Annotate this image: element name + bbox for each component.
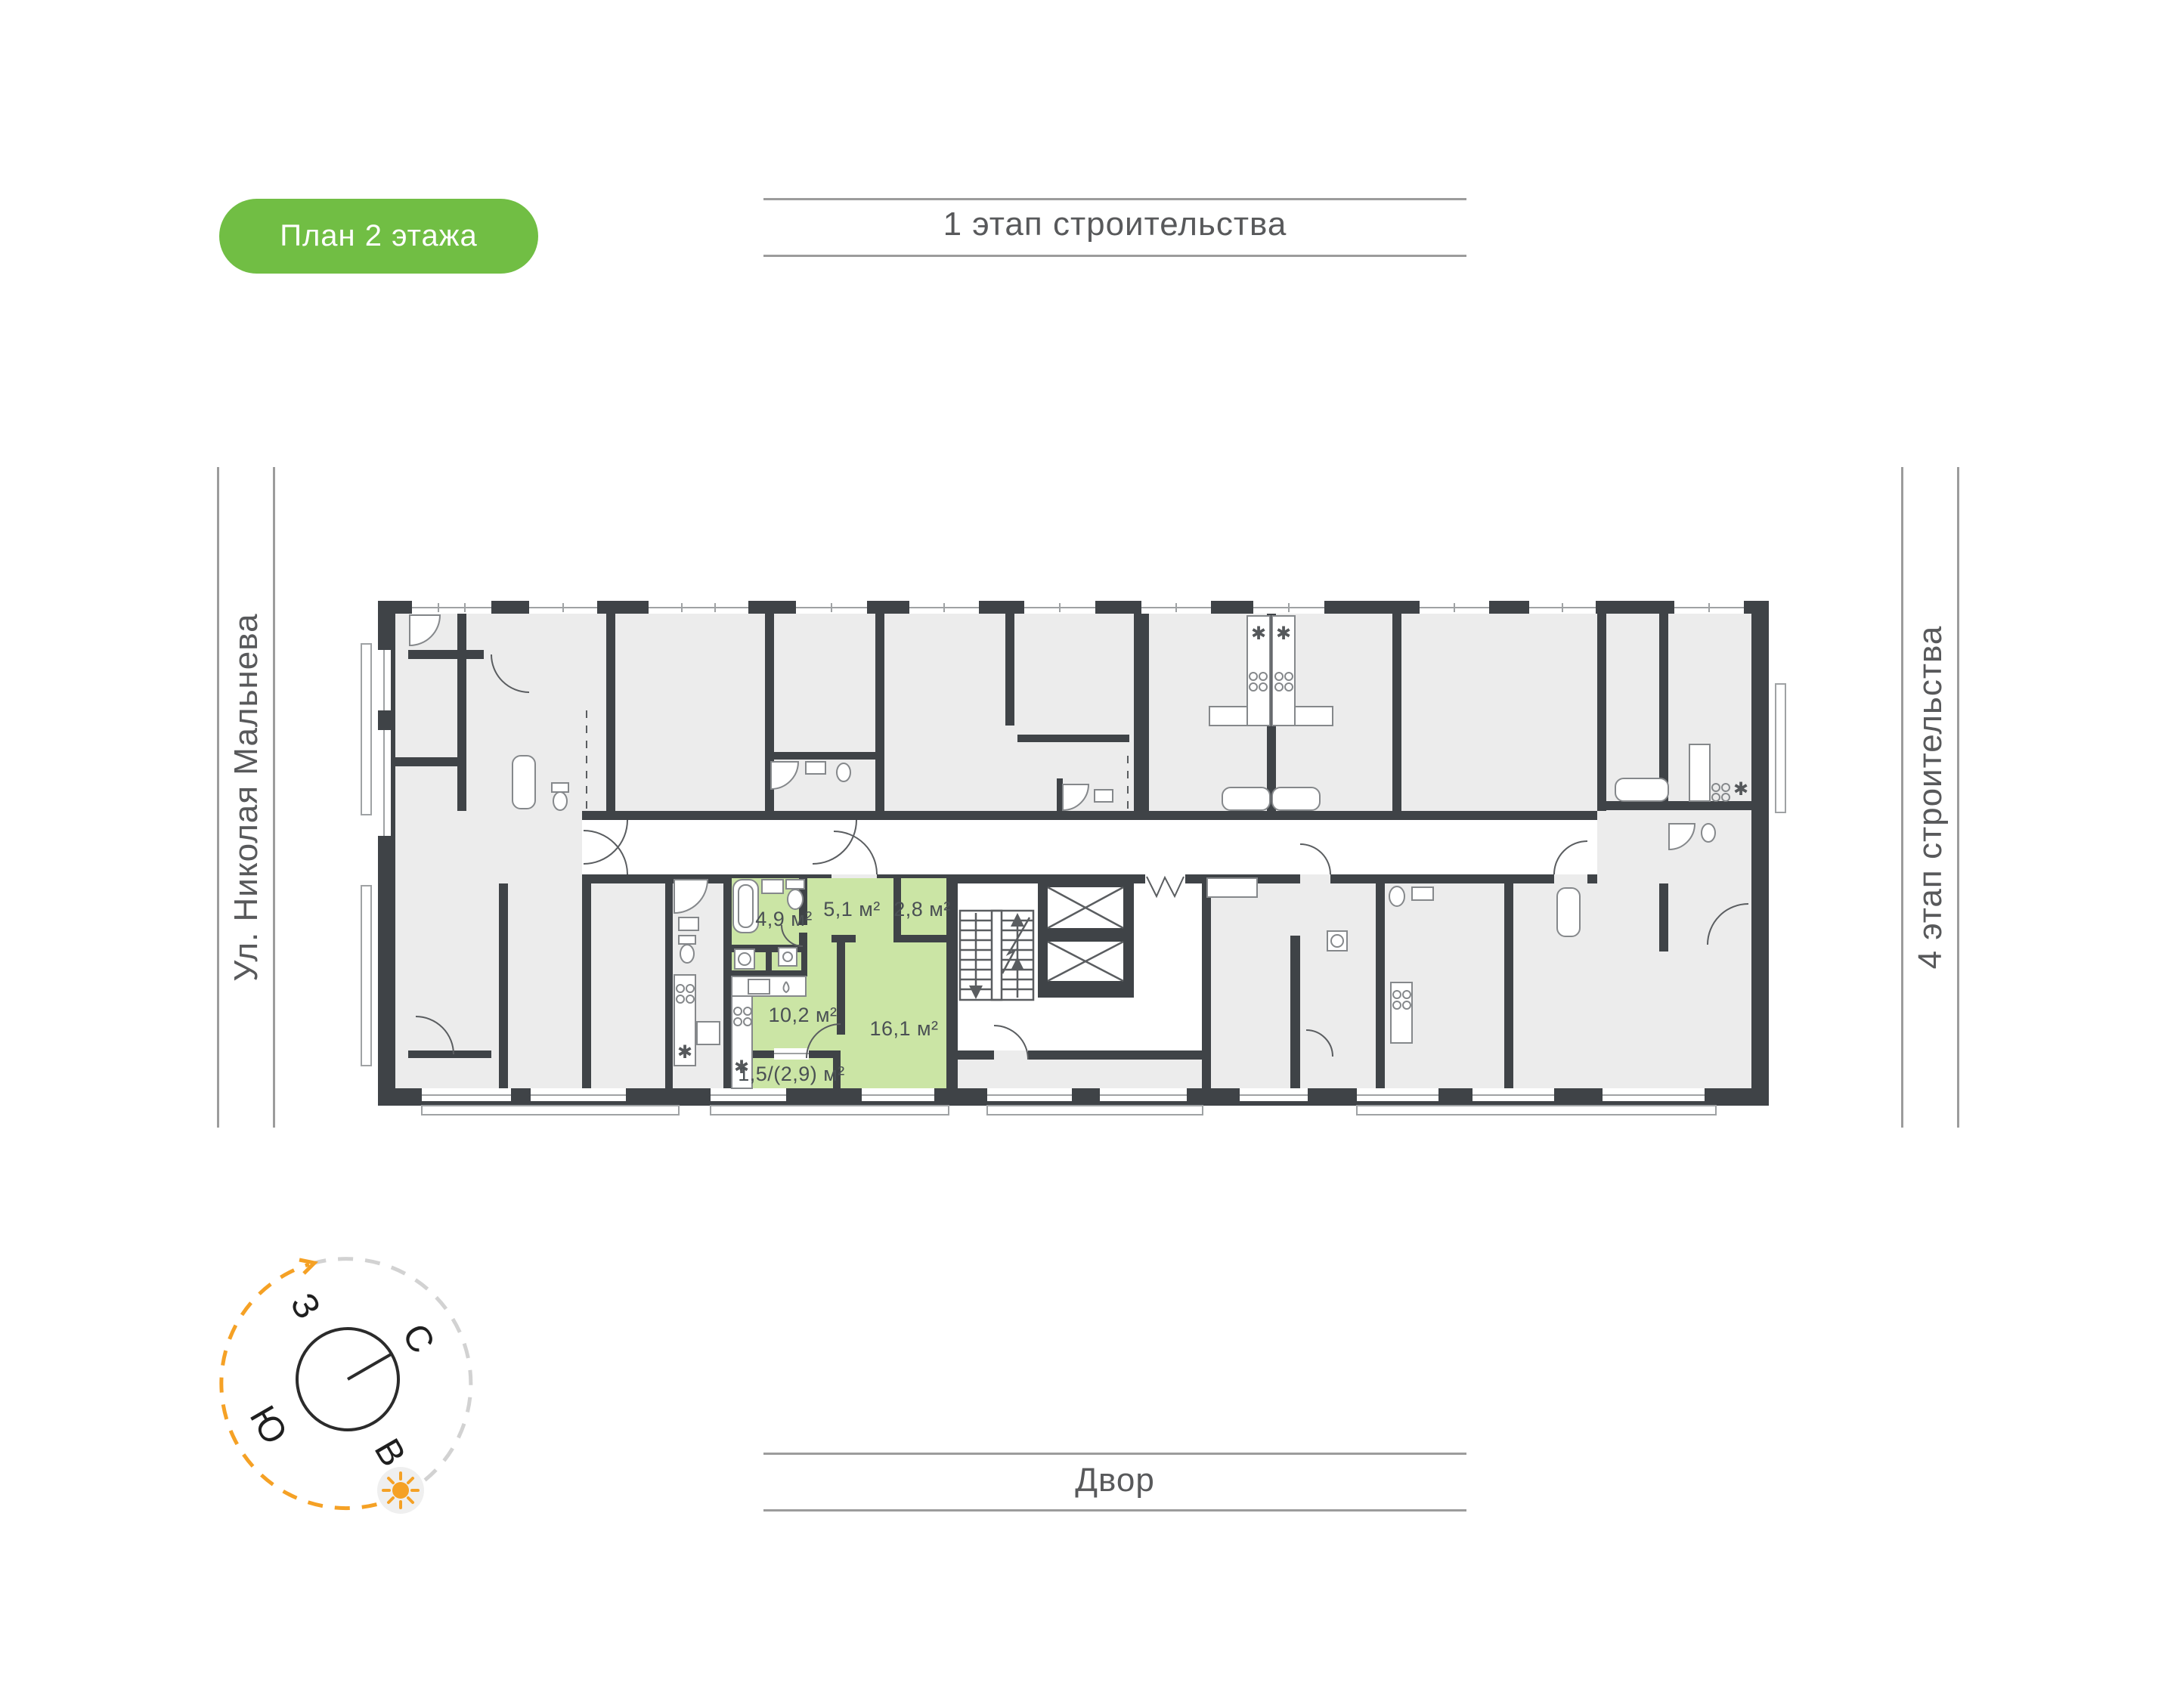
highlighted-apartment[interactable]: ✱ 4,9 м² 5,1 м² 2,8 м² 10,2 м² 16,1 м² 1… — [732, 878, 951, 1088]
compass-west-label: З — [282, 1286, 327, 1326]
floor-plan: ✱ 4,9 м² 5,1 м² 2,8 м² 10,2 м² 16,1 м² 1… — [0, 0, 2177, 1708]
room-area-label-hallway: 5,1 м² — [823, 898, 881, 921]
compass-dial: С В Ю З — [203, 1245, 484, 1518]
compass: С В Ю З — [203, 1245, 484, 1518]
elevator-shaft — [1048, 942, 1123, 981]
corridor — [582, 820, 1597, 874]
compass-east-label: В — [367, 1432, 413, 1473]
svg-text:✱: ✱ — [677, 1042, 692, 1063]
room-area-label-storage: 2,8 м² — [893, 898, 951, 921]
sun-icon — [377, 1467, 424, 1514]
elevator-core — [1038, 874, 1134, 998]
room-area-label-bathroom: 4,9 м² — [755, 908, 813, 930]
room-area-label-balcony: 1,5/(2,9) м² — [738, 1063, 845, 1085]
svg-text:✱: ✱ — [1276, 623, 1291, 644]
svg-text:✱: ✱ — [1251, 623, 1266, 644]
room-area-label-kitchen: 10,2 м² — [768, 1004, 837, 1026]
compass-north-label: С — [394, 1317, 441, 1360]
balcony-window — [774, 1048, 809, 1060]
svg-text:✱: ✱ — [1733, 779, 1748, 800]
page: План 2 этажа 1 этап строительства Двор У… — [0, 0, 2177, 1708]
room-area-label-living-room: 16,1 м² — [869, 1017, 938, 1040]
elevator-shaft — [1048, 887, 1123, 928]
compass-south-label: Ю — [242, 1399, 295, 1451]
